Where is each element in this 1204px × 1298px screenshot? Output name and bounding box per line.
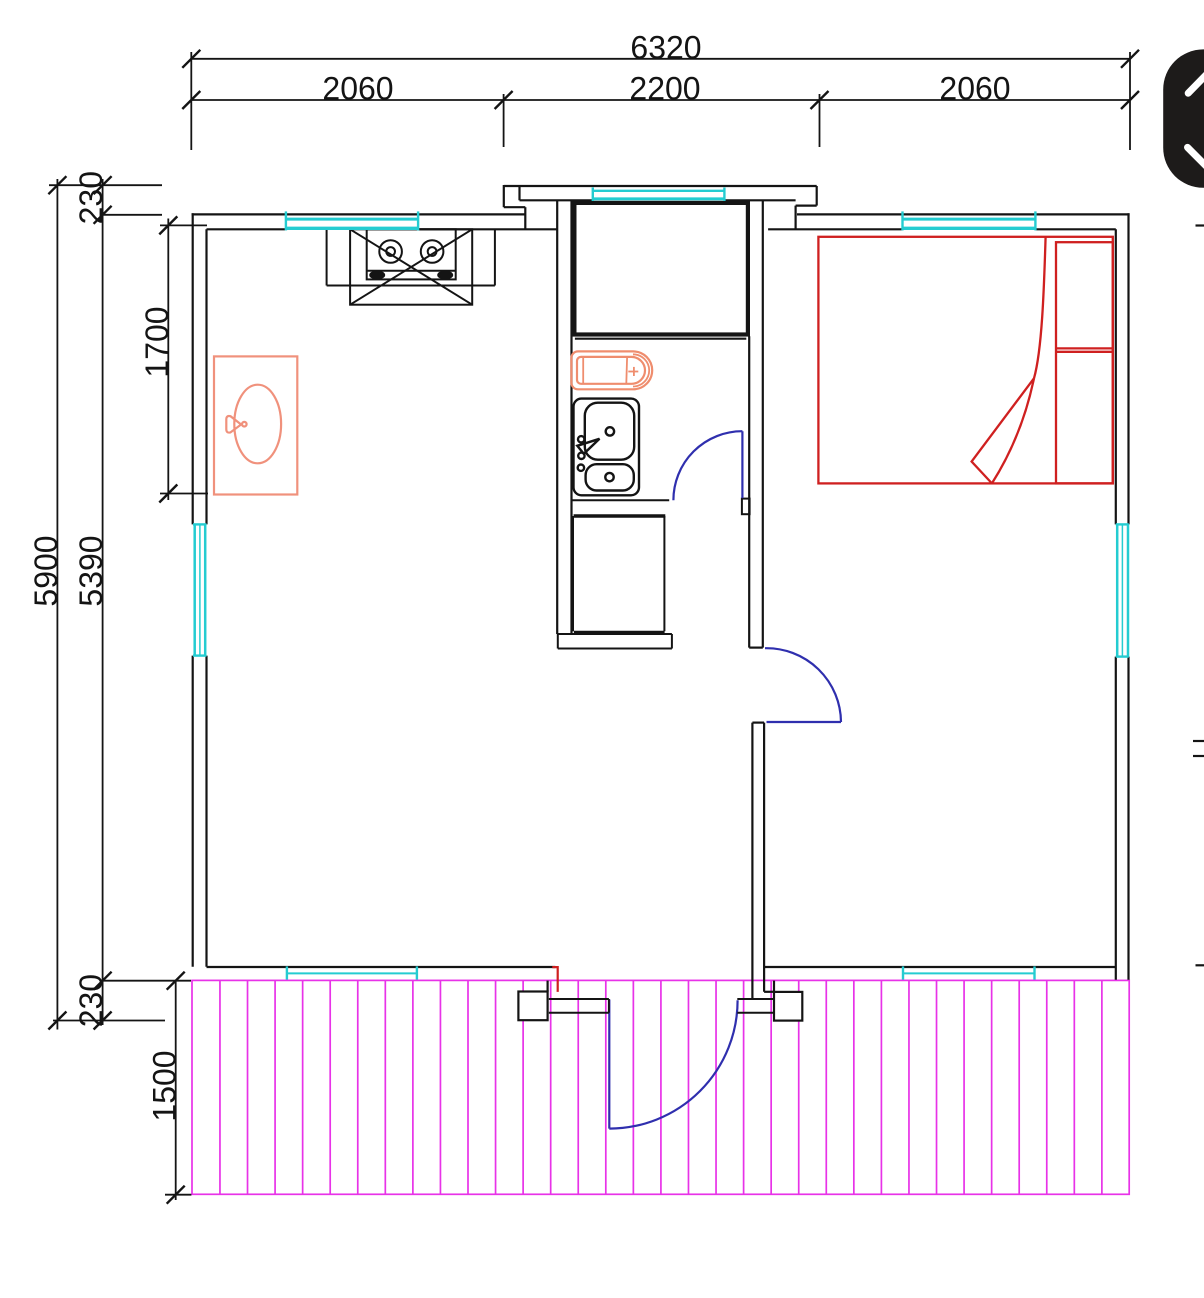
svg-text:2060: 2060 [939, 71, 1010, 107]
svg-text:230: 230 [73, 171, 109, 224]
svg-text:1700: 1700 [139, 306, 175, 377]
svg-text:230: 230 [73, 974, 109, 1027]
svg-text:2060: 2060 [322, 71, 393, 107]
svg-text:1500: 1500 [146, 1050, 182, 1121]
svg-text:2200: 2200 [629, 71, 700, 107]
svg-text:5900: 5900 [28, 535, 64, 606]
svg-text:5390: 5390 [73, 535, 109, 606]
svg-text:6320: 6320 [630, 29, 701, 65]
